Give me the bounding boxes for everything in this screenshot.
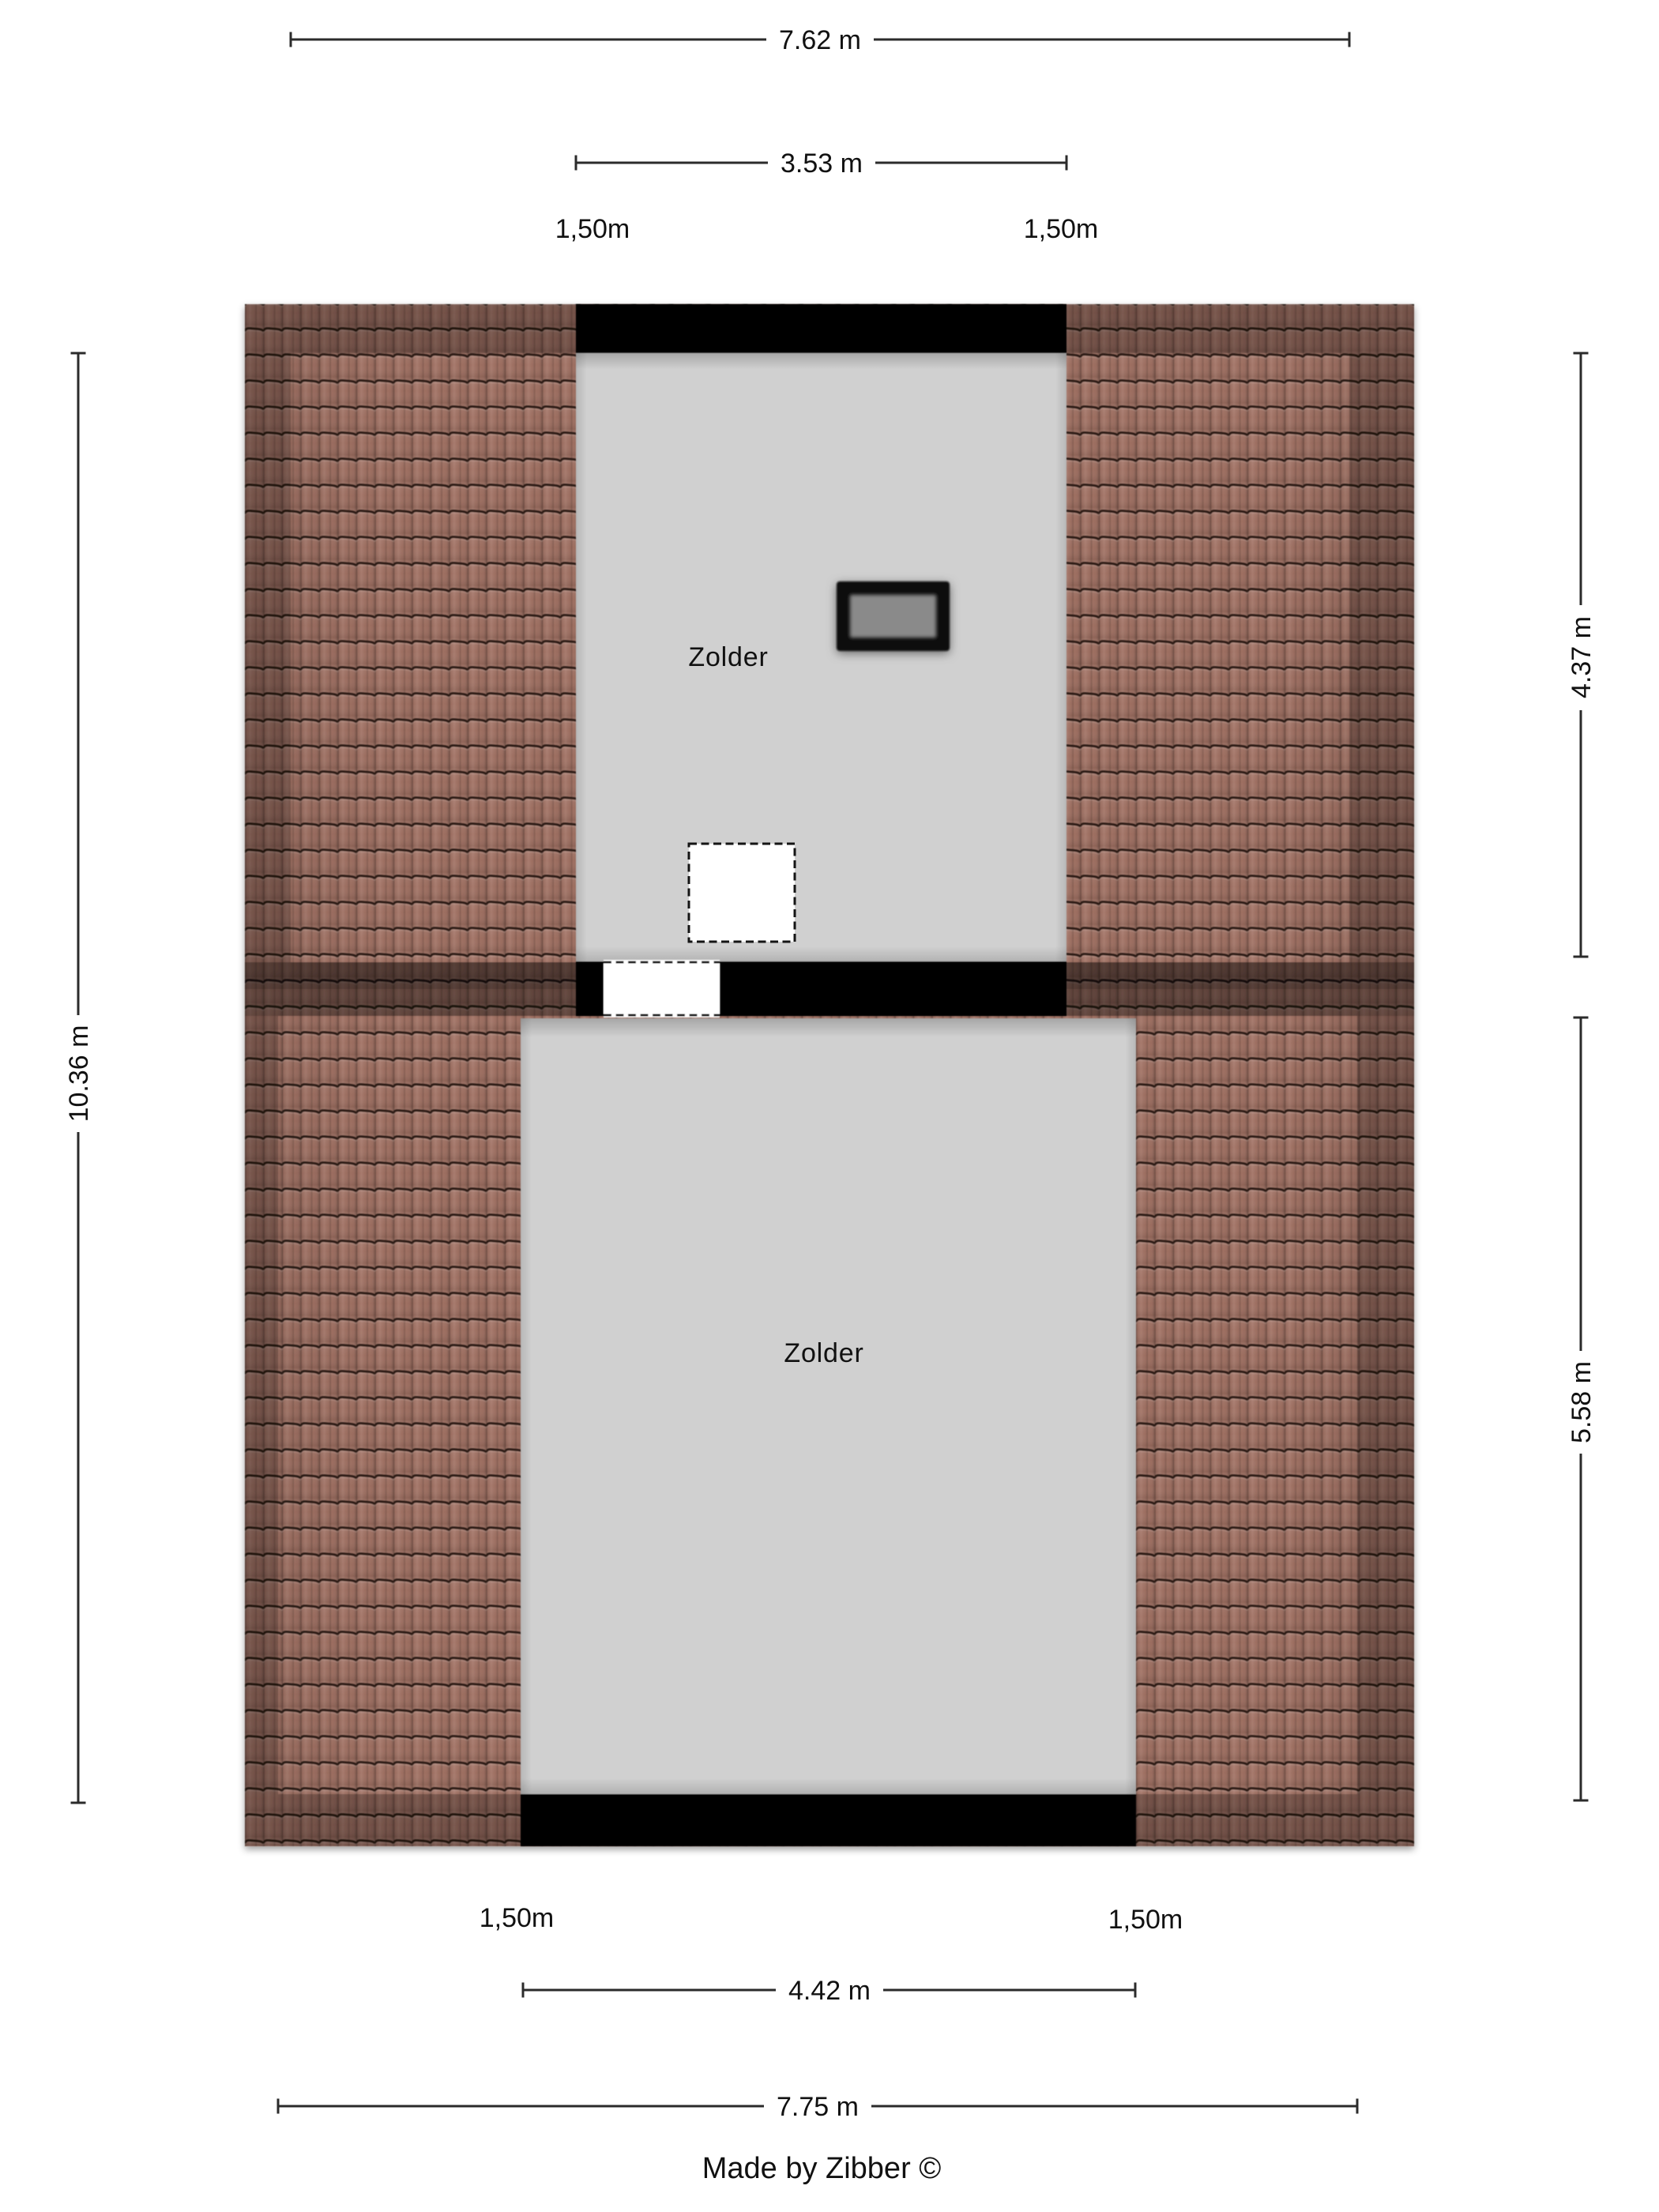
svg-text:4.42 m: 4.42 m [788, 1976, 871, 2006]
svg-text:1,50m: 1,50m [555, 214, 630, 244]
svg-text:10.36 m: 10.36 m [64, 1025, 94, 1123]
svg-text:1,50m: 1,50m [480, 1903, 555, 1933]
svg-text:7.75 m: 7.75 m [777, 2092, 859, 2122]
svg-text:4.37 m: 4.37 m [1567, 616, 1597, 698]
svg-text:1,50m: 1,50m [1024, 214, 1099, 244]
svg-text:7.62 m: 7.62 m [779, 25, 861, 55]
svg-text:5.58 m: 5.58 m [1567, 1361, 1597, 1443]
svg-text:1,50m: 1,50m [1108, 1905, 1183, 1935]
svg-text:Zolder: Zolder [784, 1338, 863, 1368]
svg-text:3.53 m: 3.53 m [781, 149, 863, 179]
svg-text:Zolder: Zolder [688, 642, 768, 672]
svg-text:Made by Zibber ©: Made by Zibber © [702, 2152, 942, 2185]
